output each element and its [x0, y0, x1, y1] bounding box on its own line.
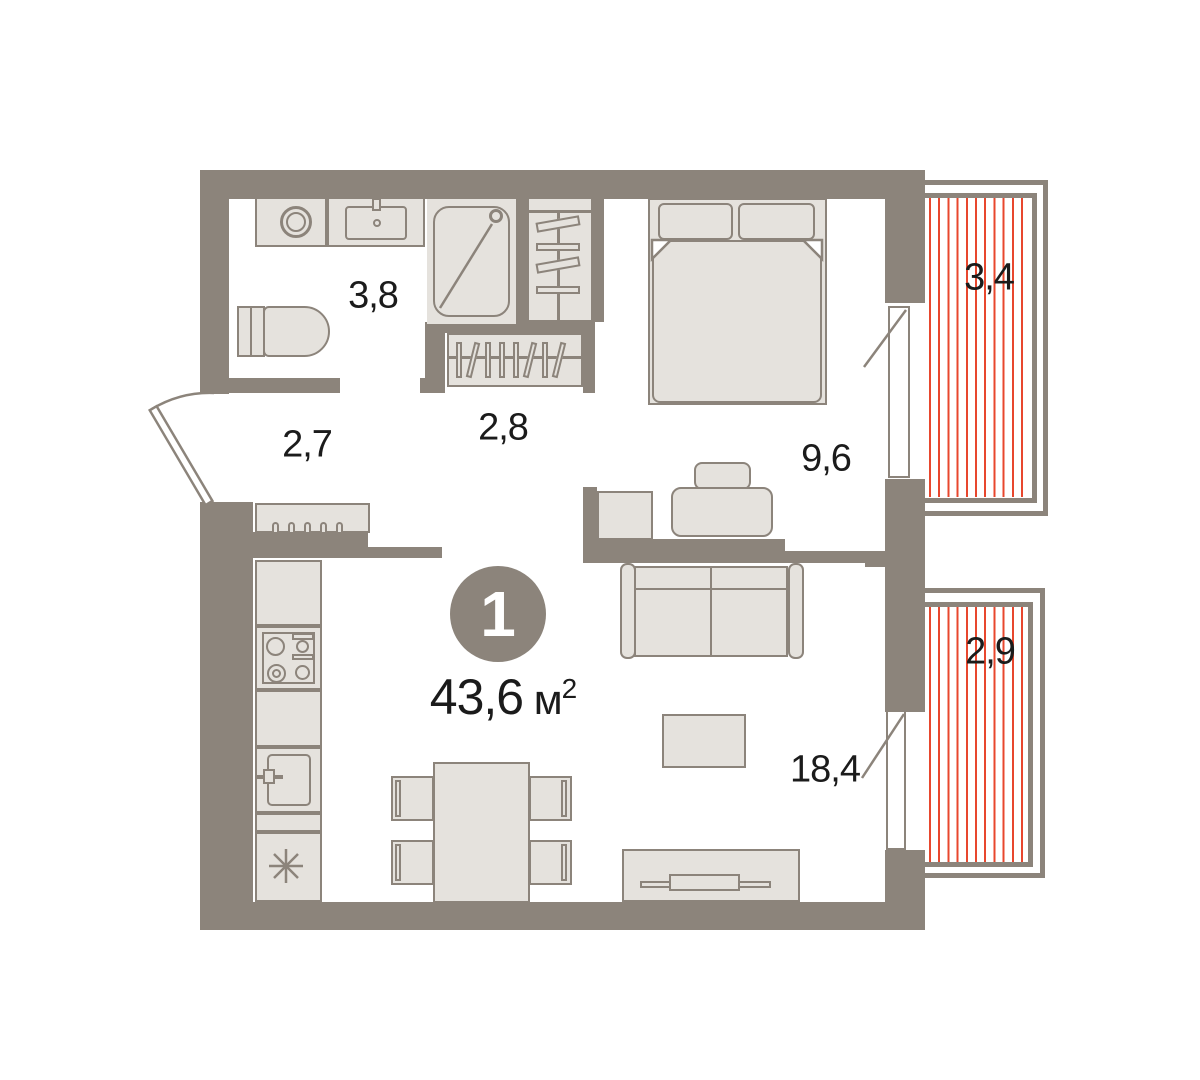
wardrobe-slat-4 [536, 286, 580, 294]
bathroom-sink-faucet-icon [372, 198, 381, 211]
burner-2-bar-top-icon [292, 633, 314, 640]
total-area: 43,6 м2 [430, 668, 576, 726]
pillow-left-icon [658, 203, 733, 240]
balcony-upper-hatch [929, 198, 1026, 497]
wall-right-bottom [885, 850, 925, 930]
washing-machine-drum-inner-icon [286, 212, 306, 232]
sofa-seat-left-icon [634, 588, 712, 657]
shower-basin-icon [433, 206, 510, 317]
burner-2-bar-bottom-icon [292, 654, 314, 660]
kitchen-counter-2 [255, 690, 322, 747]
dining-table-icon [433, 762, 530, 903]
floor-plan: 3,8 2,7 2,8 9,6 18,4 3,4 2,9 1 43,6 м2 [0, 0, 1200, 1080]
kitchen-counter-1 [255, 560, 322, 626]
wall-right-top [885, 172, 925, 303]
wall-left-lower [200, 502, 253, 930]
wall-closet-right [583, 333, 595, 393]
sofa-armrest-right-icon [788, 563, 804, 659]
bathroom-sink-drain-icon [373, 219, 381, 227]
room-label-living: 18,4 [790, 749, 860, 792]
pillow-right-icon [738, 203, 815, 240]
room-label-balcony-lower: 2,9 [965, 631, 1015, 674]
burner-2-icon [296, 640, 309, 653]
sofa-seat-right-icon [710, 588, 788, 657]
coat-hook-2 [288, 522, 295, 532]
wall-top [200, 170, 925, 199]
sofa-back-right-icon [710, 566, 788, 590]
wall-divider-b [785, 551, 868, 563]
dining-chair-4-back [561, 844, 567, 881]
wall-bottom [200, 902, 925, 930]
room-count-badge: 1 [450, 566, 546, 662]
blanket-icon [652, 240, 822, 403]
wall-left-upper [200, 170, 229, 394]
wall-bedroom-left [592, 197, 604, 322]
sofa-back-left-icon [634, 566, 712, 590]
dining-chair-2-back [395, 844, 401, 881]
hanger-3 [485, 342, 491, 378]
room-label-bedroom: 9,6 [801, 438, 851, 481]
room-label-closet: 2,8 [478, 407, 528, 450]
hanger-7 [542, 342, 548, 378]
entry-door-leaf [150, 406, 213, 505]
room-label-hallway: 2,7 [282, 424, 332, 467]
total-area-value: 43,6 [430, 669, 523, 725]
wall-hall-kitchen [253, 532, 368, 558]
toilet-bowl-icon [263, 306, 330, 357]
wall-hall-kitchen-thin [368, 547, 442, 558]
wardrobe-slat-2 [536, 243, 580, 251]
room-count-number: 1 [480, 577, 516, 651]
fridge-icon [255, 832, 322, 902]
coat-hook-3 [304, 522, 311, 532]
hanger-5 [513, 342, 519, 378]
coat-hook-1 [272, 522, 279, 532]
coat-hook-4 [320, 522, 327, 532]
shower-drain-icon [489, 209, 503, 223]
dining-chair-1-back [395, 780, 401, 817]
hanger-1 [456, 342, 462, 378]
bedroom-balcony-door-frame [888, 306, 910, 478]
burner-1-icon [266, 637, 285, 656]
burner-4-icon [295, 665, 310, 680]
coffee-table-icon [662, 714, 746, 768]
bedroom-desk-icon [597, 491, 653, 540]
hanger-4 [499, 342, 505, 378]
dining-chair-3-back [561, 780, 567, 817]
wall-bathroom-bottom [200, 378, 340, 393]
wardrobe-shelf-line [529, 210, 591, 213]
bedroom-chair-back-icon [694, 462, 751, 490]
bedroom-chair-seat-icon [671, 487, 773, 537]
total-area-unit: м [534, 676, 562, 723]
room-label-balcony-upper: 3,4 [964, 257, 1014, 300]
coat-hook-5 [336, 522, 343, 532]
wall-divider-stub [865, 551, 885, 567]
entry-door-arc [152, 393, 214, 409]
wall-divider-a [583, 539, 785, 563]
tv-base-icon [669, 874, 740, 891]
wall-right-middle [885, 479, 925, 712]
kitchen-faucet-handle-icon [263, 769, 275, 784]
burner-3-inner-icon [272, 669, 281, 678]
kitchen-counter-3 [255, 813, 322, 832]
total-area-exponent: 2 [562, 673, 577, 704]
living-balcony-door-frame [886, 710, 906, 850]
wall-closet-left [425, 333, 445, 393]
room-label-bathroom: 3,8 [348, 275, 398, 318]
